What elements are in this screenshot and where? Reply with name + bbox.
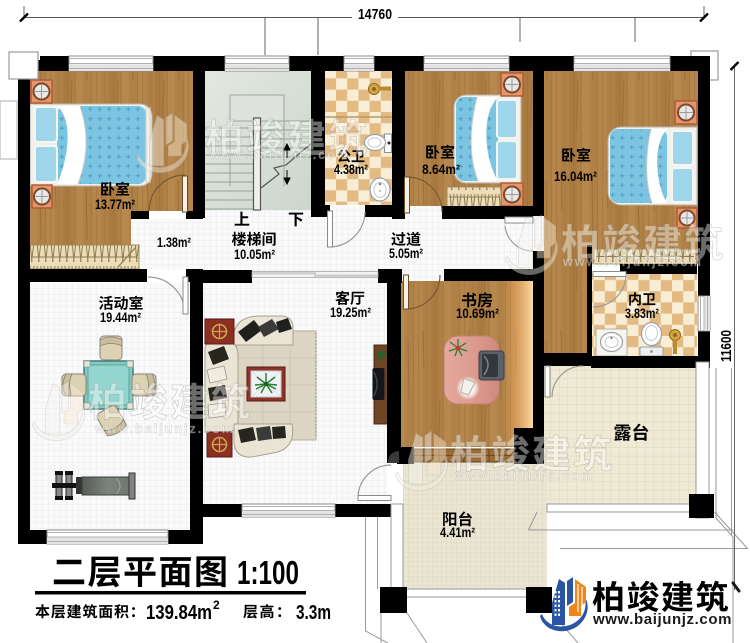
- svg-text:19.25m²: 19.25m²: [330, 304, 371, 320]
- svg-text:2: 2: [213, 598, 220, 612]
- svg-text:13.77m²: 13.77m²: [95, 196, 135, 212]
- svg-text:www.baijunjz.com: www.baijunjz.com: [562, 255, 703, 269]
- svg-text:4.41m²: 4.41m²: [440, 524, 475, 540]
- svg-text:3.3m: 3.3m: [296, 602, 331, 624]
- svg-text:11600: 11600: [718, 330, 735, 362]
- svg-text:4.38m²: 4.38m²: [334, 161, 368, 177]
- svg-text:3.83m²: 3.83m²: [625, 305, 659, 321]
- svg-text:www.baijunjz.com: www.baijunjz.com: [453, 469, 594, 483]
- svg-text:19.44m²: 19.44m²: [100, 309, 141, 325]
- svg-text:1:100: 1:100: [237, 554, 299, 591]
- svg-text:www.baijunjz.com: www.baijunjz.com: [209, 148, 350, 162]
- svg-text:1.38m²: 1.38m²: [157, 234, 191, 250]
- svg-text:16.04m²: 16.04m²: [554, 168, 597, 184]
- svg-text:www.baijunjz.com: www.baijunjz.com: [94, 422, 235, 436]
- svg-text:10.69m²: 10.69m²: [456, 305, 499, 321]
- svg-text:14760: 14760: [358, 6, 392, 23]
- svg-text:139.84m: 139.84m: [146, 602, 212, 624]
- svg-text:5.05m²: 5.05m²: [389, 245, 423, 261]
- svg-text:10.05m²: 10.05m²: [234, 246, 275, 262]
- svg-text:8.64m²: 8.64m²: [422, 161, 460, 177]
- svg-text:www.baijunjz.com: www.baijunjz.com: [592, 611, 732, 628]
